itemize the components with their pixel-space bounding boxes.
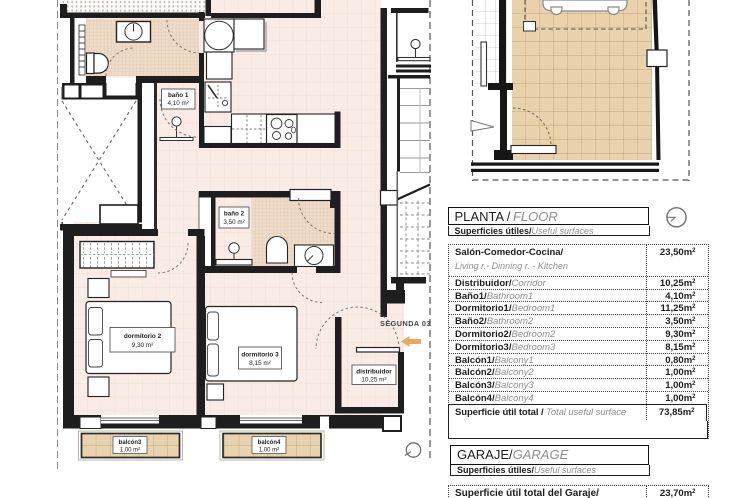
svg-text:balcón3: balcón3 bbox=[119, 440, 142, 446]
svg-text:8,15 m²: 8,15 m² bbox=[249, 360, 271, 367]
svg-text:SEGUNDA 03: SEGUNDA 03 bbox=[380, 319, 431, 328]
svg-text:1,00 m²: 1,00 m² bbox=[259, 448, 279, 454]
svg-text:balcón4: balcón4 bbox=[258, 440, 281, 446]
svg-text:baño 2: baño 2 bbox=[224, 211, 245, 218]
svg-text:9,30 m²: 9,30 m² bbox=[132, 342, 154, 349]
svg-text:distribuidor: distribuidor bbox=[356, 369, 392, 376]
svg-text:1,00 m²: 1,00 m² bbox=[120, 448, 140, 454]
svg-text:dormitorio 3: dormitorio 3 bbox=[241, 352, 279, 359]
svg-text:10,25 m²: 10,25 m² bbox=[361, 377, 386, 384]
svg-text:3,50 m²: 3,50 m² bbox=[223, 219, 244, 226]
svg-text:dormitorio 2: dormitorio 2 bbox=[124, 333, 162, 340]
svg-text:4,10 m²: 4,10 m² bbox=[168, 100, 189, 107]
svg-text:baño 1: baño 1 bbox=[168, 92, 189, 99]
